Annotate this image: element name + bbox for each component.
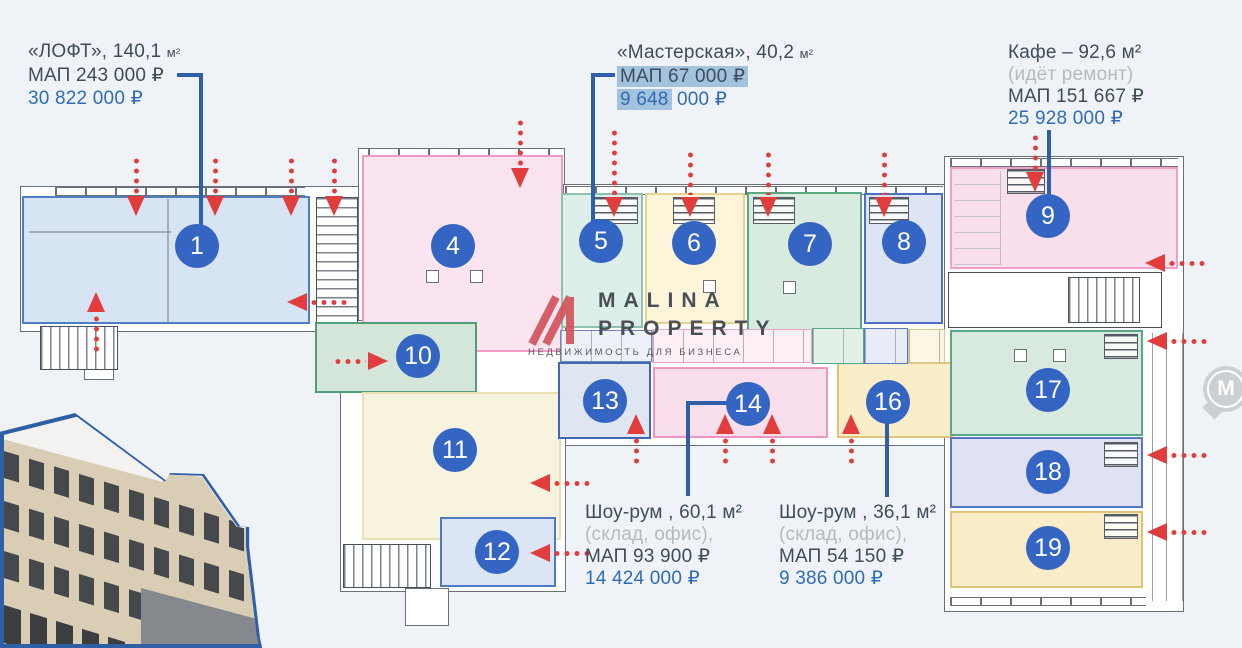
window-ticks bbox=[55, 187, 305, 196]
entrance-arrow-dots bbox=[94, 314, 99, 352]
unit-badge-1[interactable]: 1 bbox=[175, 224, 219, 268]
showroom60-map: МАП 93 900 ₽ bbox=[585, 546, 742, 568]
unit-badge-12[interactable]: 12 bbox=[475, 530, 519, 574]
interior-wall bbox=[167, 199, 169, 323]
entrance-arrow-dots bbox=[134, 156, 139, 194]
annotation-connector-line bbox=[686, 401, 728, 405]
unit-badge-13[interactable]: 13 bbox=[583, 379, 627, 423]
plan-wall-block bbox=[405, 588, 449, 626]
entrance-arrow-dots bbox=[1167, 261, 1205, 266]
column bbox=[426, 270, 439, 283]
building-photo-inner bbox=[4, 409, 268, 644]
cafe-note: (идёт ремонт) bbox=[1008, 64, 1144, 86]
utility-room bbox=[864, 328, 908, 364]
entrance-arrow-dots bbox=[333, 359, 366, 364]
annotation-workshop: «Мастерская», 40,2 м² МАП 67 000 ₽ 9 648… bbox=[617, 41, 813, 111]
unit-badge-10[interactable]: 10 bbox=[396, 334, 440, 378]
entry-stairs bbox=[1104, 514, 1138, 539]
entrance-arrow-dots bbox=[766, 150, 771, 195]
cafe-map: МАП 151 667 ₽ bbox=[1008, 86, 1144, 108]
unit-badge-6[interactable]: 6 bbox=[672, 221, 716, 265]
entrance-arrow-icon bbox=[605, 197, 623, 217]
entrance-arrow-dots bbox=[309, 300, 350, 305]
entrance-arrow-icon bbox=[368, 352, 388, 370]
interior-wall bbox=[29, 231, 171, 233]
entrance-arrow-dots bbox=[612, 128, 617, 195]
staircase bbox=[343, 544, 431, 588]
showroom36-note: (склад, офис), bbox=[779, 524, 936, 546]
showroom36-price: 9 386 000 ₽ bbox=[779, 568, 936, 590]
entrance-arrow-icon bbox=[530, 474, 550, 492]
unit-badge-11[interactable]: 11 bbox=[433, 428, 477, 472]
showroom60-price: 14 424 000 ₽ bbox=[585, 568, 742, 590]
unit-badge-4[interactable]: 4 bbox=[431, 224, 475, 268]
floor-plan-page: 1456789101112131416171819 «ЛОФТ», 140,1 … bbox=[0, 0, 1242, 648]
showroom36-map: МАП 54 150 ₽ bbox=[779, 546, 936, 568]
brand-line-1: MALINA bbox=[598, 287, 778, 315]
entry-stairs bbox=[1104, 442, 1138, 467]
utility-room bbox=[908, 329, 945, 363]
building-photo bbox=[0, 405, 272, 648]
entrance-arrow-dots bbox=[552, 481, 592, 486]
window-ticks bbox=[950, 158, 1178, 167]
unit-badge-5[interactable]: 5 bbox=[579, 219, 623, 263]
annotation-connector-line bbox=[591, 73, 615, 77]
entrance-arrow-dots bbox=[213, 156, 218, 194]
unit-badge-19[interactable]: 19 bbox=[1026, 526, 1070, 570]
loft-title: «ЛОФТ», 140,1 bbox=[28, 41, 161, 62]
unit-region-1[interactable] bbox=[22, 196, 310, 324]
annotation-loft: «ЛОФТ», 140,1 м² МАП 243 000 ₽ 30 822 00… bbox=[28, 40, 180, 110]
entrance-arrow-icon bbox=[127, 196, 145, 216]
entrance-arrow-icon bbox=[1147, 523, 1167, 541]
entrance-arrow-icon bbox=[875, 197, 893, 217]
entrance-arrow-icon bbox=[530, 544, 550, 562]
workshop-title: «Мастерская», 40,2 bbox=[617, 42, 794, 63]
loft-price: 30 822 000 ₽ bbox=[28, 87, 180, 110]
entrance-arrow-dots bbox=[518, 118, 523, 166]
entrance-arrow-icon bbox=[759, 197, 777, 217]
unit-badge-16[interactable]: 16 bbox=[866, 380, 910, 424]
entrance-arrow-icon bbox=[842, 414, 860, 434]
staircase bbox=[1068, 277, 1140, 323]
entrance-arrow-dots bbox=[882, 150, 887, 195]
entrance-arrow-dots bbox=[1169, 453, 1207, 458]
column bbox=[1053, 349, 1066, 362]
entrance-arrow-icon bbox=[1147, 332, 1167, 350]
unit-badge-7[interactable]: 7 bbox=[788, 222, 832, 266]
unit-badge-18[interactable]: 18 bbox=[1026, 450, 1070, 494]
entry-stairs bbox=[1104, 334, 1138, 359]
entrance-arrow-dots bbox=[1169, 339, 1207, 344]
metro-pin[interactable]: M bbox=[1203, 366, 1242, 412]
brand-line-2: PROPERTY bbox=[598, 315, 778, 343]
entrance-arrow-dots bbox=[634, 436, 639, 466]
malina-brand: MALINA PROPERTY bbox=[598, 287, 778, 343]
entrance-arrow-icon bbox=[511, 168, 529, 188]
bathroom-fixtures bbox=[954, 171, 1001, 265]
loft-map: МАП 243 000 ₽ bbox=[28, 64, 180, 87]
column bbox=[1014, 349, 1027, 362]
showroom60-note: (склад, офис), bbox=[585, 524, 742, 546]
entrance-arrow-icon bbox=[206, 196, 224, 216]
annotation-showroom-36: Шоу-рум , 36,1 м² (склад, офис), МАП 54 … bbox=[779, 502, 936, 590]
annotation-connector-line bbox=[686, 401, 690, 496]
column bbox=[470, 270, 483, 283]
malina-tagline: НЕДВИЖИМОСТЬ ДЛЯ БИЗНЕСА bbox=[528, 347, 742, 358]
entrance-arrow-icon bbox=[681, 197, 699, 217]
unit-badge-14[interactable]: 14 bbox=[726, 382, 770, 426]
area-unit: м² bbox=[167, 45, 181, 60]
showroom60-title: Шоу-рум , 60,1 м² bbox=[585, 502, 742, 524]
workshop-price-tail: 000 ₽ bbox=[672, 89, 728, 110]
workshop-map: МАП 67 000 ₽ bbox=[617, 66, 748, 87]
terrace-line bbox=[1182, 333, 1183, 601]
entrance-arrow-dots bbox=[770, 436, 775, 466]
cafe-price: 25 928 000 ₽ bbox=[1008, 108, 1144, 130]
entrance-arrow-dots bbox=[332, 156, 337, 194]
workshop-price-highlight: 9 648 bbox=[617, 89, 672, 110]
column bbox=[783, 281, 796, 294]
area-unit: м² bbox=[800, 46, 814, 61]
showroom36-title: Шоу-рум , 36,1 м² bbox=[779, 502, 936, 524]
terrace-line bbox=[1166, 333, 1167, 601]
utility-room bbox=[812, 328, 864, 364]
unit-badge-8[interactable]: 8 bbox=[882, 220, 926, 264]
unit-badge-9[interactable]: 9 bbox=[1026, 194, 1070, 238]
window-ticks bbox=[950, 597, 1146, 606]
annotation-connector-line bbox=[885, 423, 889, 497]
staircase bbox=[40, 326, 118, 370]
unit-badge-17[interactable]: 17 bbox=[1026, 368, 1070, 412]
entrance-arrow-dots bbox=[688, 150, 693, 195]
annotation-connector-line bbox=[1047, 130, 1051, 202]
cafe-title: Кафе – 92,6 м² bbox=[1008, 42, 1144, 64]
terrace-line bbox=[1152, 333, 1153, 601]
malina-logo-icon bbox=[526, 288, 586, 346]
entrance-arrow-icon bbox=[87, 292, 105, 312]
entrance-arrow-icon bbox=[1026, 172, 1044, 192]
entrance-arrow-dots bbox=[1169, 530, 1207, 535]
metro-icon: M bbox=[1207, 370, 1242, 408]
entrance-arrow-dots bbox=[723, 436, 728, 466]
annotation-connector-line bbox=[199, 73, 203, 227]
entrance-arrow-icon bbox=[282, 196, 300, 216]
entrance-arrow-icon bbox=[287, 293, 307, 311]
building-facade bbox=[4, 409, 268, 644]
annotation-connector-line bbox=[591, 73, 595, 223]
annotation-showroom-60: Шоу-рум , 60,1 м² (склад, офис), МАП 93 … bbox=[585, 502, 742, 590]
entrance-arrow-dots bbox=[289, 156, 294, 194]
entrance-arrow-dots bbox=[849, 436, 854, 466]
entrance-arrow-icon bbox=[627, 414, 645, 434]
annotation-cafe: Кафе – 92,6 м² (идёт ремонт) МАП 151 667… bbox=[1008, 42, 1144, 130]
entrance-arrow-icon bbox=[1145, 254, 1165, 272]
entrance-arrow-icon bbox=[1147, 446, 1167, 464]
entrance-arrow-icon bbox=[325, 196, 343, 216]
entrance-arrow-dots bbox=[1033, 133, 1038, 170]
